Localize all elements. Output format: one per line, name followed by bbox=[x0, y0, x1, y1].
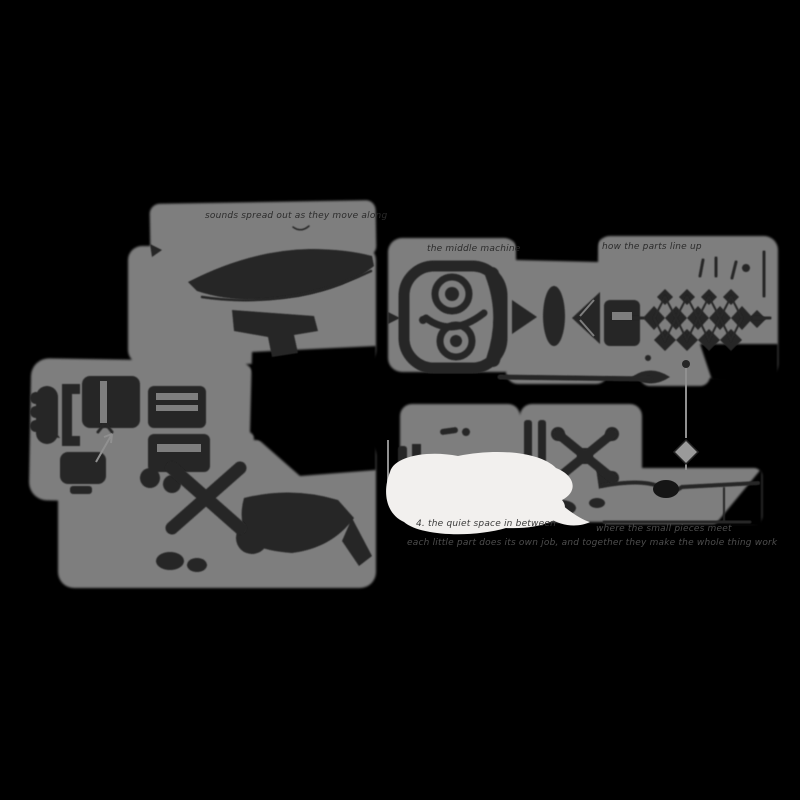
lattice-side-block bbox=[604, 300, 640, 346]
box-slit bbox=[100, 381, 107, 423]
slotted-box bbox=[82, 376, 140, 428]
ink-dot bbox=[156, 552, 184, 570]
white-patch-note: 4. the quiet space in between bbox=[416, 519, 556, 529]
machine-note: the middle machine bbox=[427, 244, 521, 254]
gear-core-bottom bbox=[450, 335, 462, 347]
plumb-anchor-dot bbox=[682, 360, 690, 368]
caption-line-1: where the small pieces meet bbox=[596, 524, 732, 534]
roller-bump bbox=[30, 406, 42, 418]
small-box-foot bbox=[70, 486, 92, 494]
horizontal-rule bbox=[500, 377, 650, 379]
panel-dot bbox=[462, 428, 470, 436]
block-slit bbox=[156, 393, 198, 400]
ink-dot bbox=[589, 498, 605, 508]
ground-slab-notch bbox=[653, 480, 679, 498]
block-slit bbox=[156, 405, 198, 411]
lattice-note: how the parts line up bbox=[602, 242, 702, 252]
roller-bump bbox=[30, 392, 42, 404]
lens bbox=[543, 286, 565, 346]
left-page-note: sounds spread out as they move along bbox=[205, 211, 387, 221]
illustration-canvas: sounds spread out as they move along the… bbox=[0, 0, 800, 800]
eye-dot bbox=[645, 355, 651, 361]
block-slit bbox=[157, 444, 201, 452]
carve-label-gap bbox=[516, 236, 598, 262]
roller-bump bbox=[30, 420, 42, 432]
sprig-dot bbox=[742, 264, 750, 272]
illustration-stage: sounds spread out as they move along the… bbox=[0, 0, 800, 800]
ink-dot bbox=[140, 468, 160, 488]
caption-line-2: each little part does its own job, and t… bbox=[407, 538, 778, 548]
block-slit bbox=[612, 312, 632, 320]
gear-core-top bbox=[445, 287, 459, 301]
ink-dot bbox=[187, 558, 207, 572]
